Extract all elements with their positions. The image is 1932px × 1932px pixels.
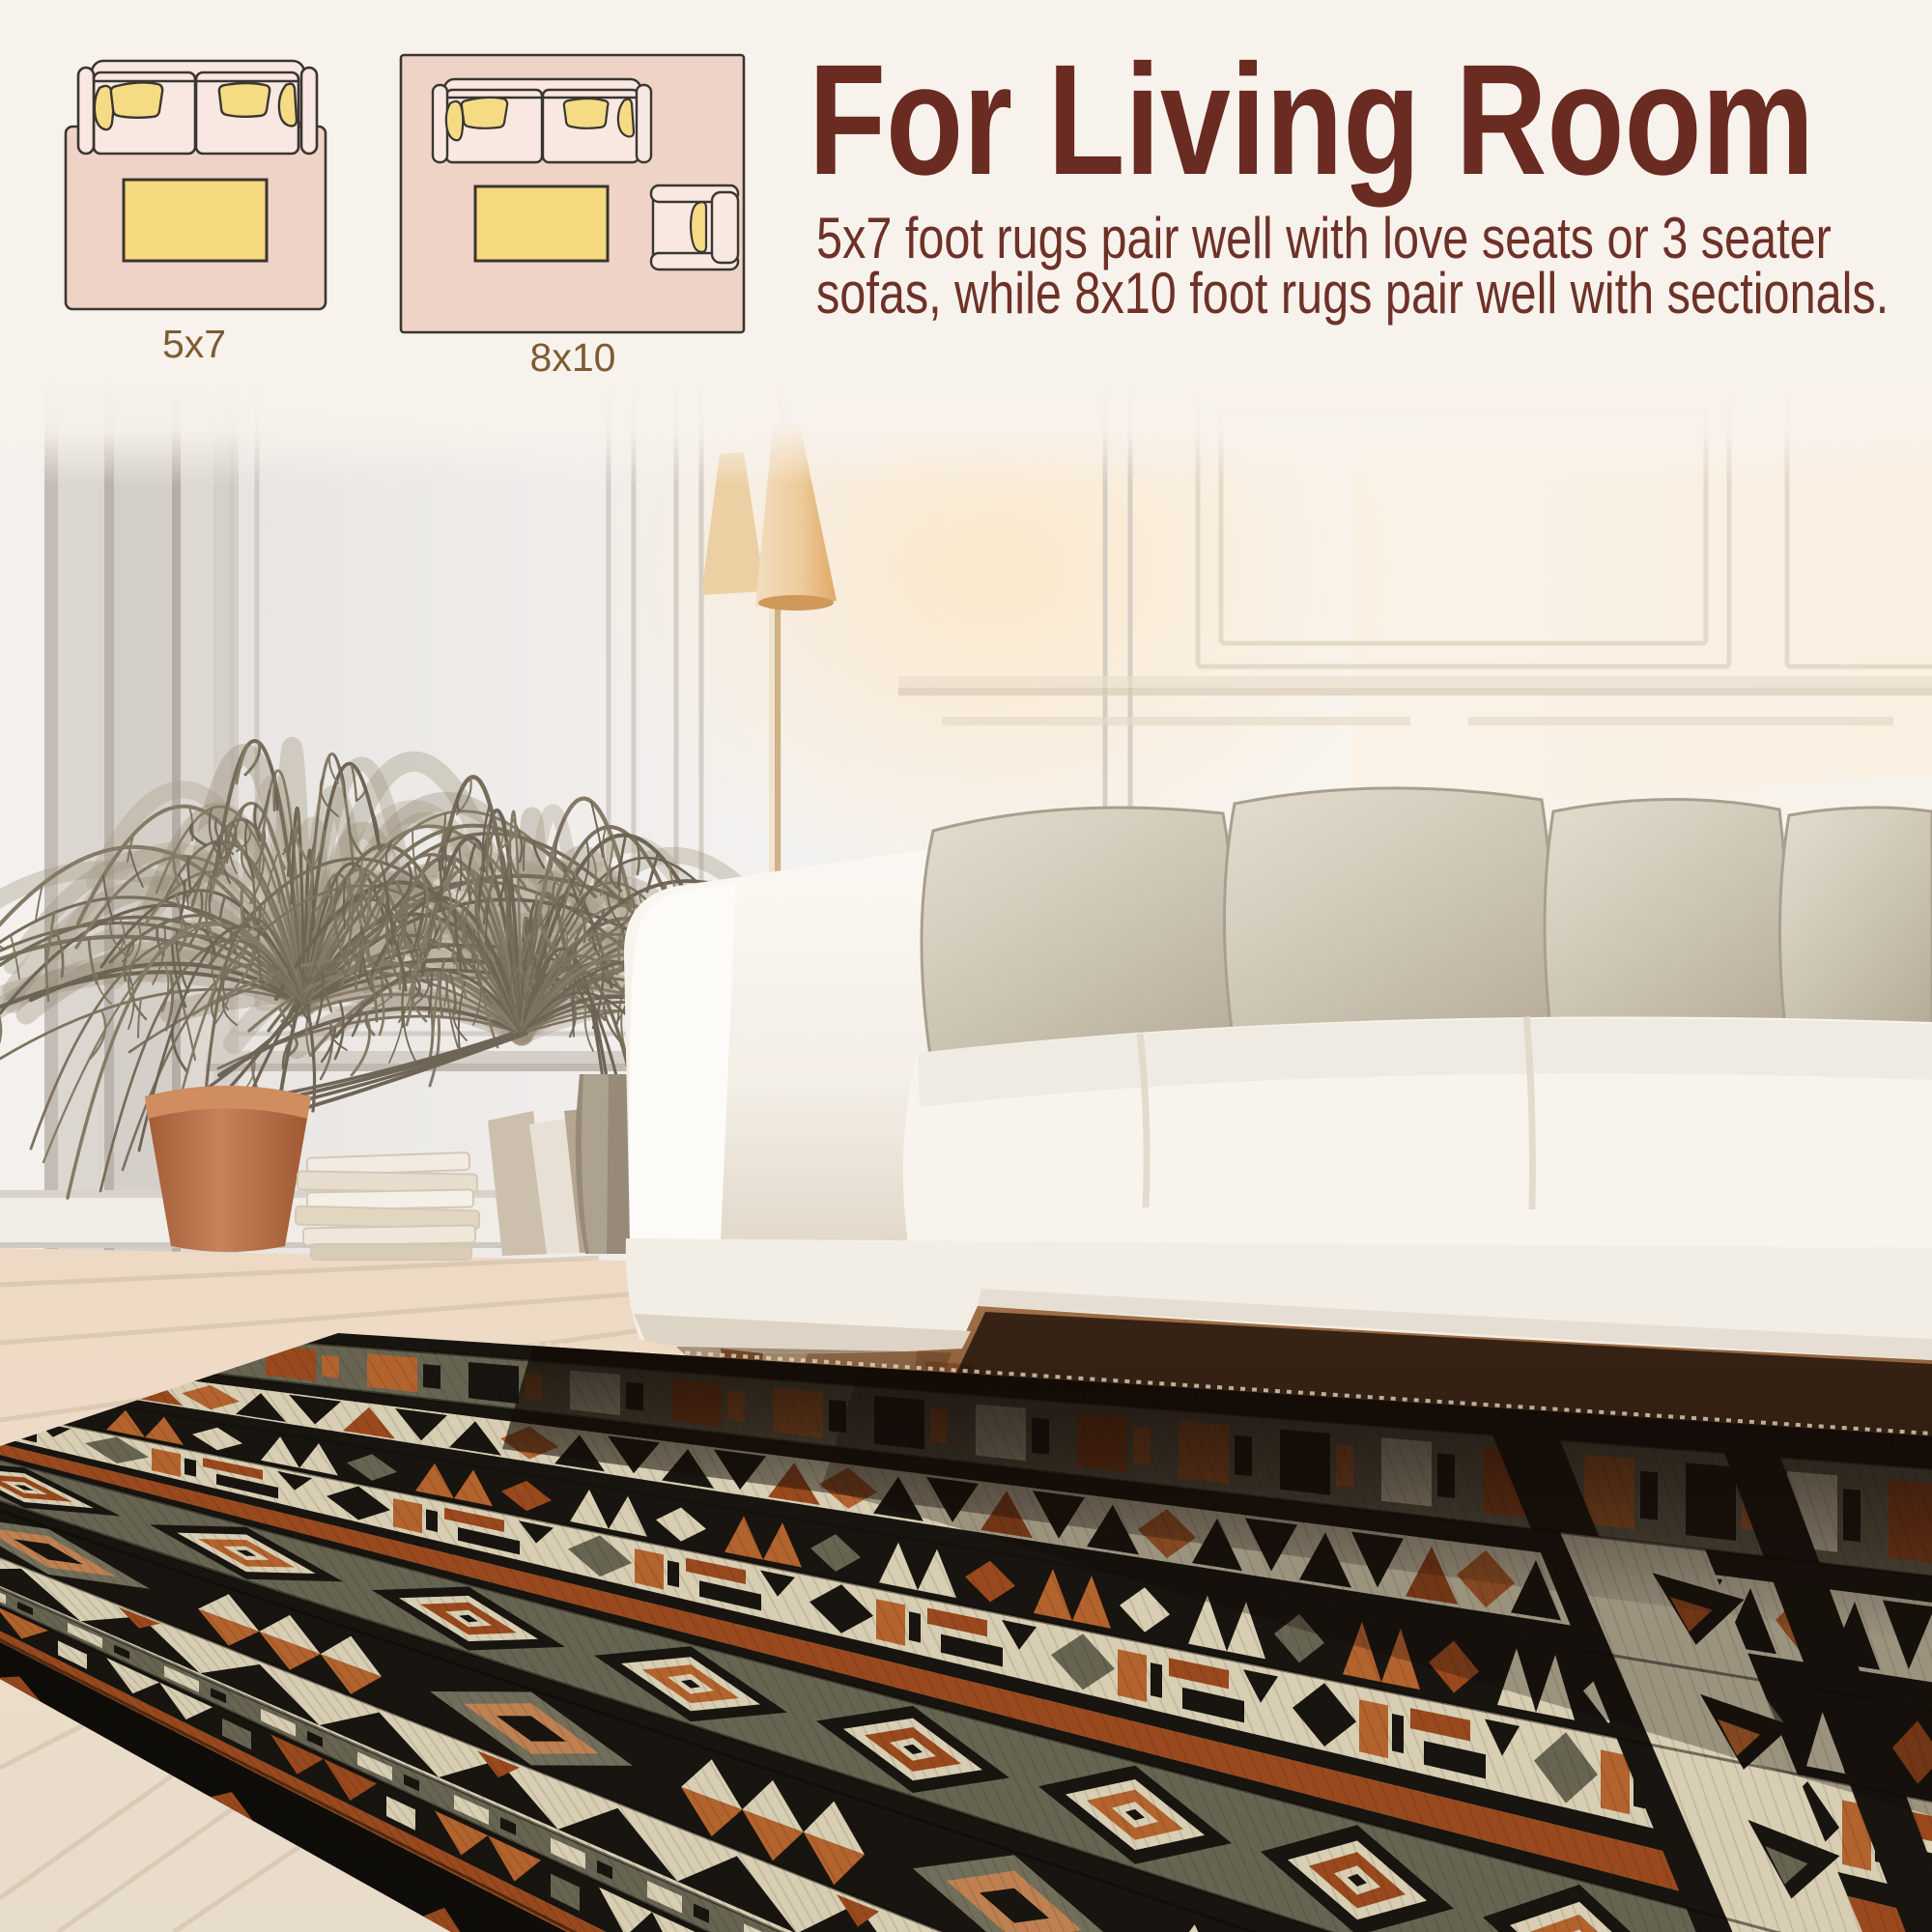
- svg-text:5x7: 5x7: [162, 322, 226, 366]
- svg-text:8x10: 8x10: [530, 335, 616, 380]
